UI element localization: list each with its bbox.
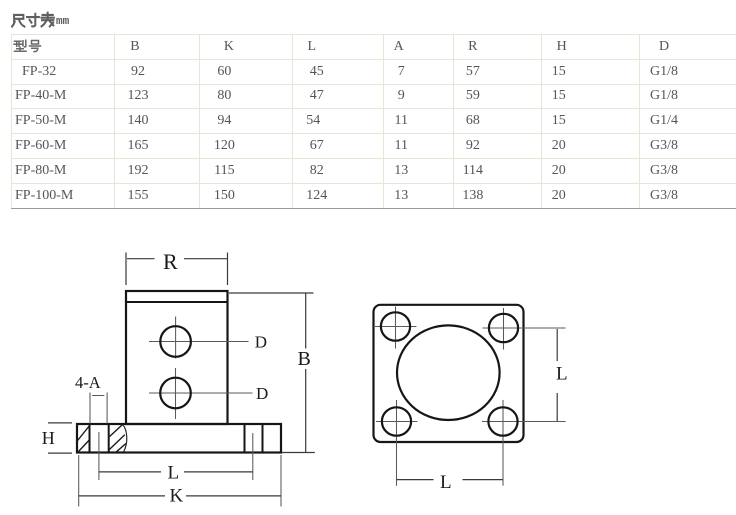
svg-text:B: B <box>298 348 311 370</box>
svg-text:R: R <box>163 249 178 274</box>
svg-text:L: L <box>168 462 180 483</box>
svg-text:H: H <box>42 428 55 448</box>
svg-text:L: L <box>440 472 452 493</box>
svg-text:4-A: 4-A <box>75 373 101 392</box>
svg-text:K: K <box>170 485 184 506</box>
svg-text:D: D <box>255 332 267 351</box>
svg-text:D: D <box>256 384 268 403</box>
svg-text:L: L <box>556 364 568 385</box>
